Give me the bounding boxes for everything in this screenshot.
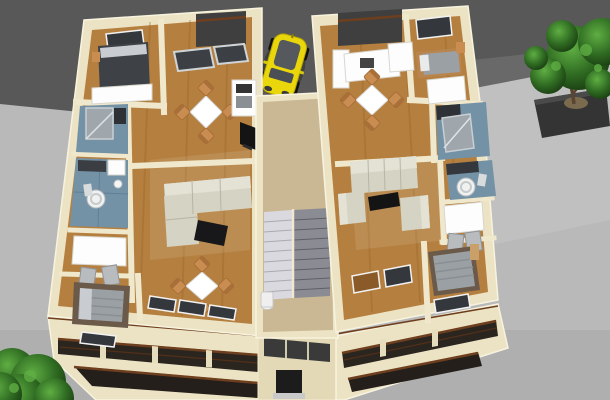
tree-foliage-light [551,61,561,71]
desk-white [72,236,126,266]
nightstand [456,42,465,53]
bed-pillow [79,288,92,320]
wall-bedroom-west [424,244,428,320]
balcony-post [432,329,438,347]
kitchen-appliance-dark [236,84,252,93]
desk-chair [102,265,120,286]
sliding-door-glass [174,48,214,71]
left-apartment [48,8,262,336]
bed-pillow [419,55,429,72]
desk-white [444,202,484,234]
toilet-tank [83,184,93,197]
radiator [470,244,479,260]
kitchen-appliance-dark [360,58,374,68]
wall-bath1-bath2 [74,154,128,156]
tree-foliage-light [9,383,19,393]
balcony-post [380,339,386,357]
planter-soil [564,97,588,109]
tree-foliage-light [594,64,602,72]
bath-counter-dark [78,160,106,172]
nightstand [92,52,100,62]
wall-baths-living [128,104,132,300]
balcony-post [152,346,158,363]
wall-bath2-desk [70,230,128,232]
wardrobe-white [92,84,152,104]
wall-bath-west [432,102,434,160]
tree-foliage-light [580,44,592,56]
kitchen-stove [236,96,252,108]
rear-balcony-right [338,9,402,46]
entrance-door [276,370,302,394]
wall-desk-bedroom2 [62,274,130,276]
wardrobe-white [427,76,466,104]
right-apartment [312,6,498,332]
stair-flight-dark [294,208,330,298]
bath-cabinet-dark [114,108,126,124]
entrance-step [273,393,305,399]
wall-bedroom-dining [161,22,164,112]
washing-machine [108,160,125,175]
balcony-post [206,350,212,367]
tree-foliage [546,20,578,52]
toilet-bowl [457,178,475,196]
tree-foliage-light [24,370,36,382]
tree-foliage [524,46,548,70]
floorplan-3d-scene [0,0,610,400]
sink [114,180,122,188]
wall-bedroom2-living [138,276,140,318]
render-viewport [0,0,610,400]
stair-flight-light [264,210,292,300]
water-heater-body [261,292,273,307]
kitchen-cabinet-white [388,42,414,72]
sliding-door-glass [214,44,248,64]
bedroom-window [416,16,452,39]
